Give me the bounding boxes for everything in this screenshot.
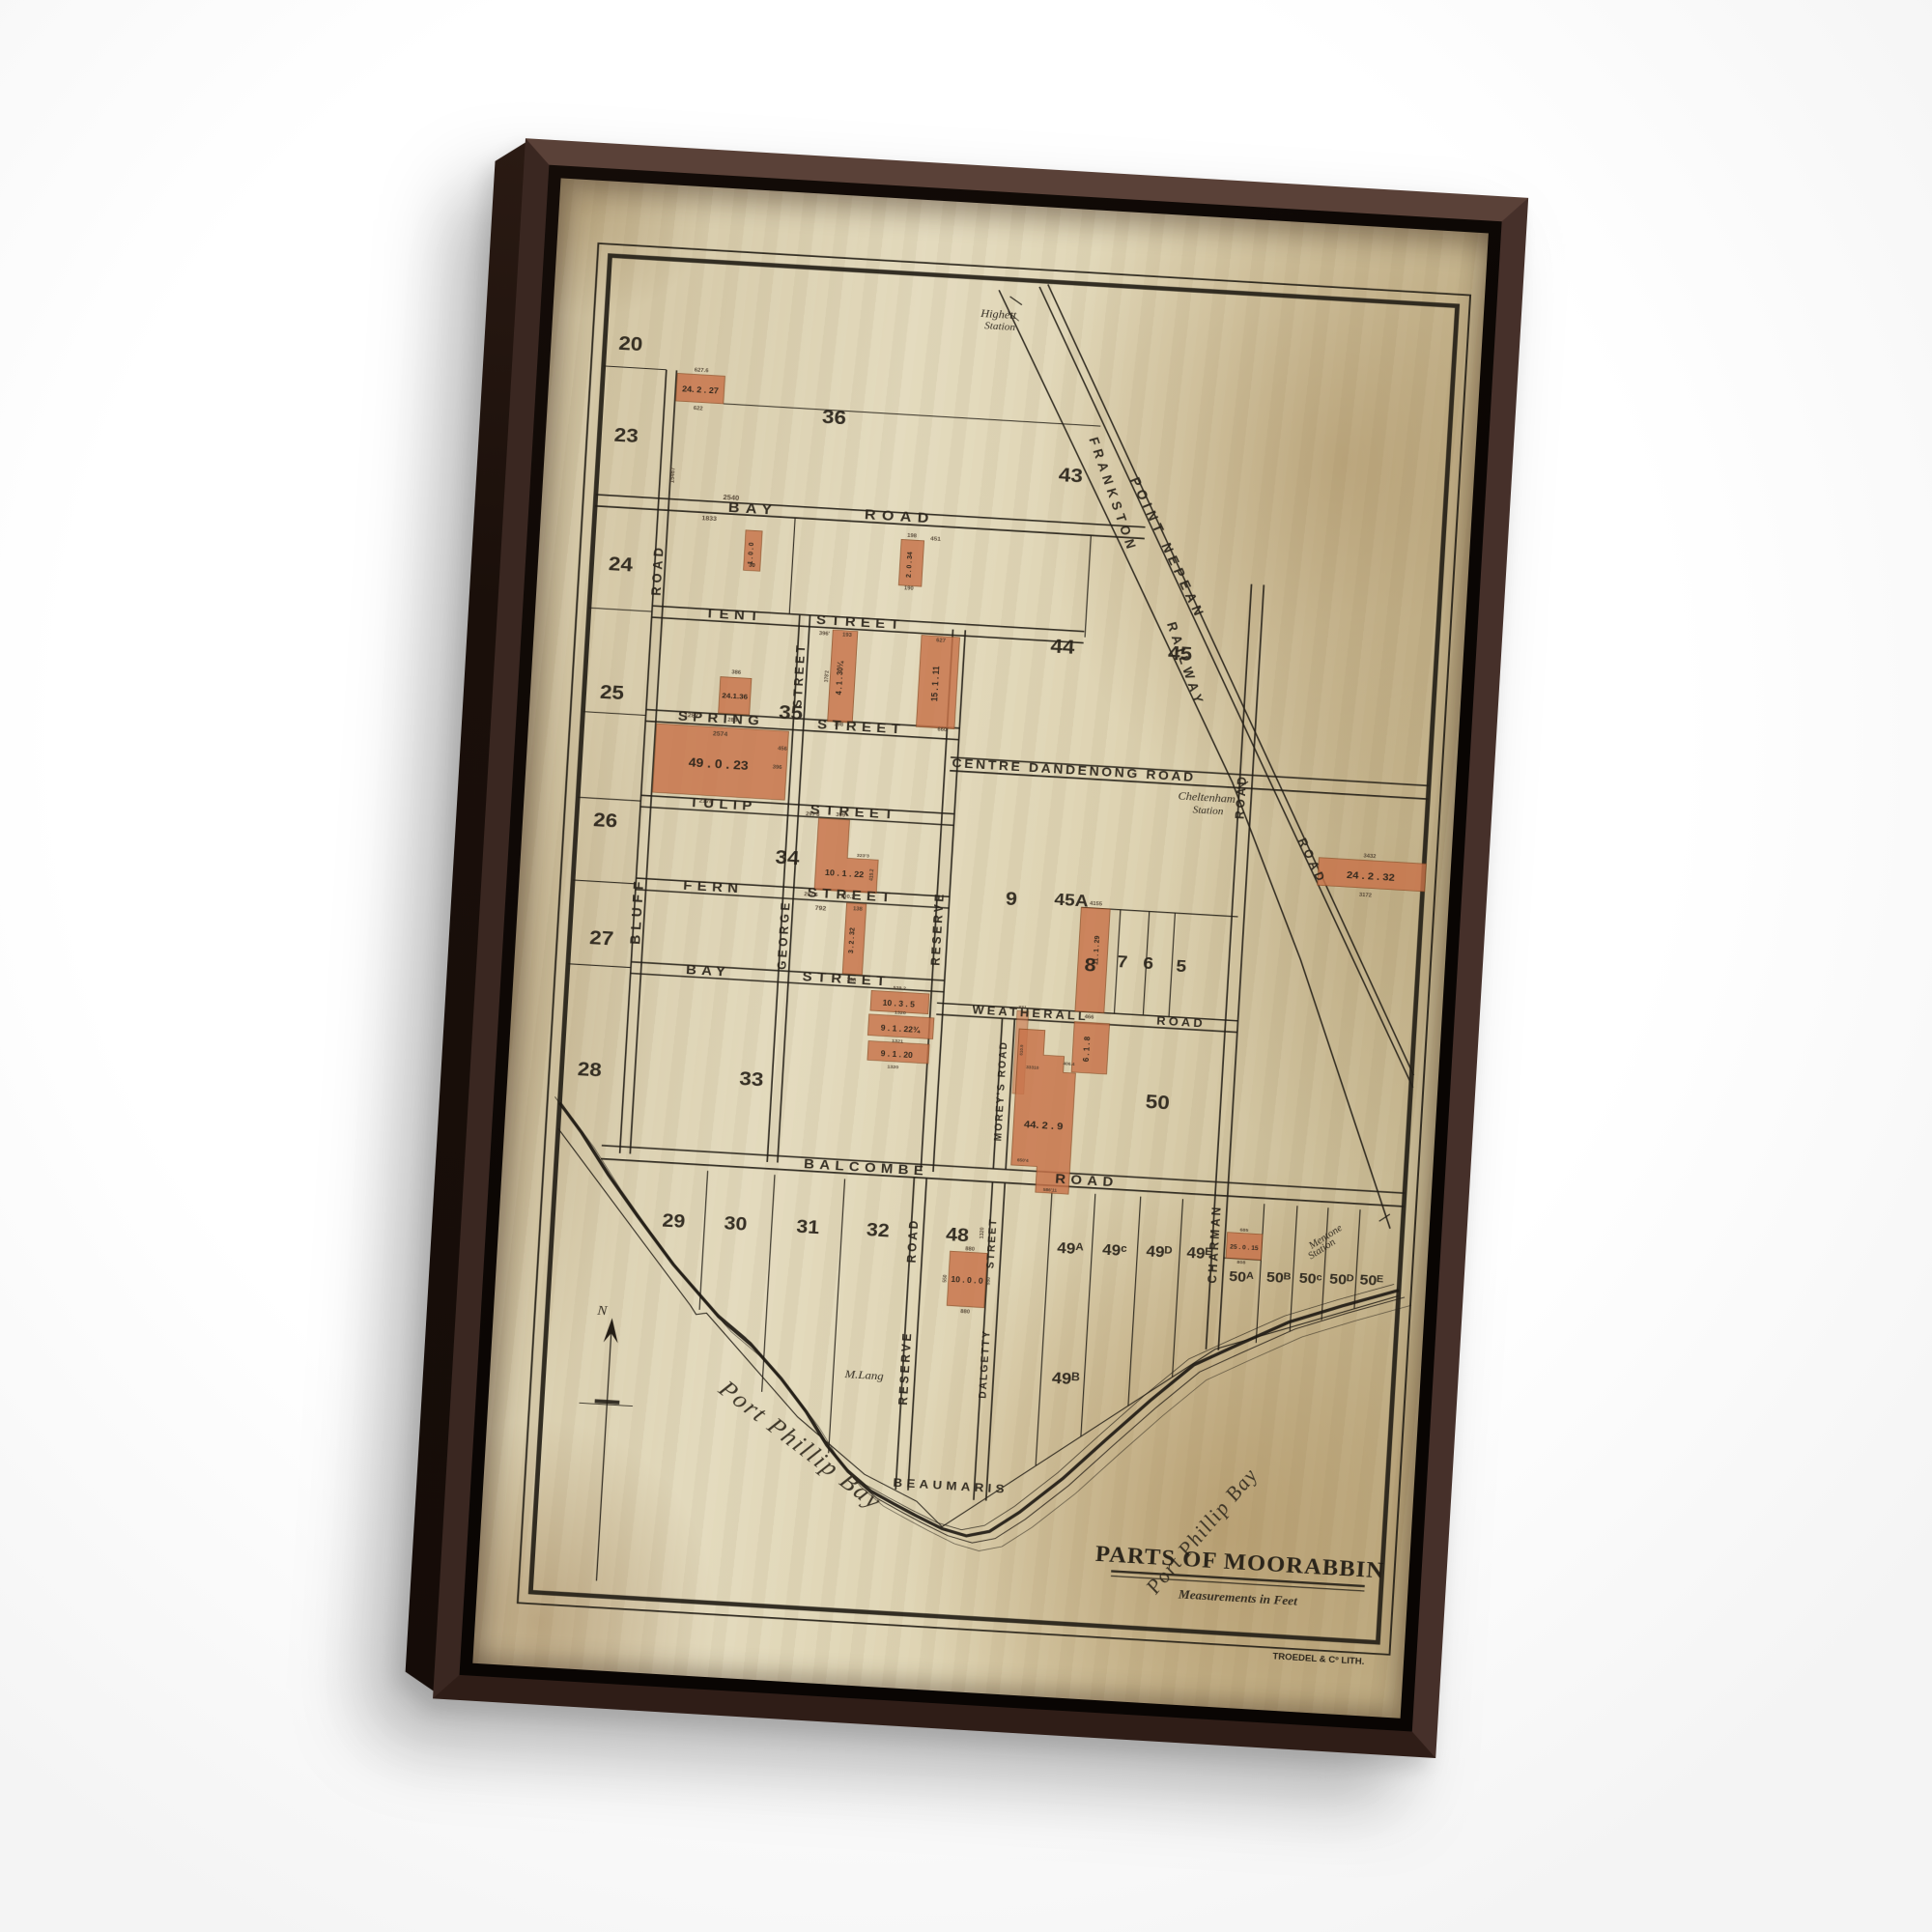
measurement-label: 622 xyxy=(694,406,703,412)
section-number: 50ᴱ xyxy=(1359,1272,1384,1290)
measurement-label: 1320 xyxy=(979,1227,985,1238)
map-svg: BAYROADTENTSTREETSPRINGSTREETTULIPSTREET… xyxy=(472,178,1489,1718)
frame-front: BAYROADTENTSTREETSPRINGSTREETTULIPSTREET… xyxy=(433,138,1528,1758)
measurement-label: 550 xyxy=(942,1274,949,1283)
measurement-label: 1287 xyxy=(684,712,699,720)
measurement-label: 297'8 xyxy=(806,811,820,818)
section-number: 7 xyxy=(1117,952,1128,972)
section-number: 6 xyxy=(1143,952,1154,973)
measurement-label: 627.6 xyxy=(695,368,709,375)
measurement-label: 550 xyxy=(985,1277,992,1286)
map-line xyxy=(541,1110,1412,1568)
map-line xyxy=(589,608,652,611)
street-label: ROAD xyxy=(904,1217,921,1263)
measurement-label: 378'2 xyxy=(824,670,831,683)
map-line xyxy=(604,366,667,370)
station-label: Station xyxy=(1192,805,1223,817)
measurement-label: 610.9 xyxy=(1019,1044,1025,1056)
street-label: CHARMAN xyxy=(1206,1204,1224,1284)
measurement-label: 396 xyxy=(772,765,781,771)
section-number: 29 xyxy=(662,1209,686,1232)
map-line xyxy=(1085,535,1091,637)
street-label: CENTRE DANDENONG ROAD xyxy=(952,755,1196,783)
map-line xyxy=(1003,284,1460,1075)
map-line xyxy=(596,1325,611,1580)
section-number: 50ᴰ xyxy=(1329,1271,1354,1289)
measurement-label: 1320 xyxy=(887,1065,898,1070)
section-number: 30 xyxy=(724,1212,748,1235)
section-number: 25 xyxy=(599,680,624,704)
measurement-label: 297'6 xyxy=(804,892,818,898)
map-line xyxy=(1128,1197,1141,1406)
map-title: TROEDEL & Cº LITH. xyxy=(1272,1652,1365,1666)
measurement-label: 198 xyxy=(846,978,856,983)
water-label: Port Phillip Bay xyxy=(713,1375,889,1516)
map-line xyxy=(568,964,631,968)
map-line xyxy=(724,404,1101,426)
section-number: 49ᴱ xyxy=(1186,1244,1212,1263)
measurement-label: 419.2 xyxy=(868,868,875,881)
highlighted-parcel xyxy=(814,818,880,894)
measurement-label: 399 xyxy=(836,812,845,818)
street-label: DALGETTY xyxy=(977,1329,993,1399)
section-number: 26 xyxy=(593,808,618,832)
parcel-label: 30 xyxy=(749,563,755,569)
parcel-label: 2 . 0 . 34 xyxy=(903,552,914,578)
measurement-label: 198 xyxy=(907,533,917,539)
station-label: N xyxy=(596,1303,609,1319)
map-line xyxy=(829,1179,845,1453)
map-line xyxy=(1379,1213,1390,1222)
parcel-label: 44. 2 . 9 xyxy=(1024,1120,1064,1133)
street-label: BAY xyxy=(686,962,731,980)
section-number: 50ᴮ xyxy=(1266,1269,1292,1287)
map-line xyxy=(601,1159,1404,1207)
measurement-label: 586'11 xyxy=(1043,1187,1058,1193)
section-number: 50ᶜ xyxy=(1298,1270,1322,1288)
measurement-label: 138 xyxy=(853,906,863,912)
section-number: 45A xyxy=(1054,889,1089,910)
measurement-label: 3432 xyxy=(1363,854,1376,861)
measurement-label: 792 xyxy=(814,905,826,912)
map-line xyxy=(578,797,640,801)
section-number: 34 xyxy=(775,845,800,869)
section-number: 44 xyxy=(1050,634,1075,658)
section-number: 49ᶜ xyxy=(1102,1241,1127,1260)
measurement-label: 190 xyxy=(904,585,914,591)
station-label: Station xyxy=(984,320,1015,332)
parcel-label: 15 . 1 . 11 xyxy=(929,666,942,702)
measurement-label: 2574 xyxy=(713,731,728,739)
measurement-label: 539.2 xyxy=(893,985,906,992)
framed-canvas: BAYROADTENTSTREETSPRINGSTREETTULIPSTREET… xyxy=(433,138,1528,1758)
station-label: M.Lang xyxy=(843,1368,884,1383)
street-label: STREET xyxy=(816,613,905,634)
measurement-label: 288 xyxy=(727,718,737,724)
map-line xyxy=(1169,913,1175,1016)
section-number: 28 xyxy=(577,1057,602,1081)
section-number: 49ᴮ xyxy=(1051,1369,1080,1389)
map-line xyxy=(595,1401,620,1403)
measurement-label: 33310 xyxy=(1026,1065,1039,1070)
street-label: ROAD xyxy=(864,507,935,527)
street-label: STREET xyxy=(817,717,906,737)
measurement-label: 3172 xyxy=(1359,893,1372,899)
section-number: 31 xyxy=(796,1216,820,1238)
section-number: 32 xyxy=(866,1219,890,1241)
map-title: Measurements in Feet xyxy=(1177,1588,1297,1608)
wall: BAYROADTENTSTREETSPRINGSTREETTULIPSTREET… xyxy=(0,0,1932,1932)
measurement-label: 466 xyxy=(1084,1014,1094,1020)
measurement-label: 1833 xyxy=(701,515,717,523)
street-label: RESERVE xyxy=(928,891,947,966)
street-label: BAY xyxy=(728,500,779,519)
street-label: ROAD xyxy=(648,544,667,596)
station-label: Cheltenham xyxy=(1178,789,1236,806)
section-number: 9 xyxy=(1005,888,1017,910)
measurement-label: 685 xyxy=(1239,1228,1248,1234)
map-line xyxy=(1036,1191,1052,1465)
measurement-label: 193 xyxy=(842,633,852,639)
parcel-label: 6 . 1 . 8 xyxy=(1082,1036,1093,1062)
measurement-label: 2178 xyxy=(698,798,713,806)
measurement-label: 1321 xyxy=(892,1038,903,1044)
measurement-label: 650'4 xyxy=(1017,1158,1030,1164)
map-line xyxy=(1009,297,1022,305)
section-number: 48 xyxy=(946,1224,970,1246)
canvas-paper: BAYROADTENTSTREETSPRINGSTREETTULIPSTREET… xyxy=(472,178,1489,1718)
section-number: 23 xyxy=(613,423,639,447)
section-number: 27 xyxy=(589,925,614,950)
measurement-label: 451 xyxy=(930,535,942,542)
section-number: 24 xyxy=(608,552,633,576)
map-line xyxy=(573,880,636,884)
section-number: 36 xyxy=(821,405,846,429)
measurement-label: 456 xyxy=(778,746,787,752)
measurement-label: 323'3 xyxy=(857,853,870,860)
section-number: 20 xyxy=(618,331,643,355)
street-label: BLUFF xyxy=(628,876,648,945)
map-line xyxy=(993,287,1459,1088)
parcel-label: 3 . 2 . 32 xyxy=(846,927,857,953)
measurement-label: 627 xyxy=(936,639,946,644)
water-label: BEAUMARIS xyxy=(893,1475,1009,1495)
measurement-label: 660' xyxy=(937,727,949,733)
map-line xyxy=(1256,1204,1264,1343)
section-number: 50 xyxy=(1145,1090,1170,1114)
measurement-label: 386 xyxy=(731,669,741,675)
parcel-label: 1 . 0 . 0 xyxy=(745,542,755,565)
street-label: RESERVE xyxy=(895,1330,914,1406)
measurement-label: 198 xyxy=(834,722,843,727)
measurement-label: 1320 xyxy=(895,1010,906,1016)
street-label: TENT xyxy=(705,607,764,625)
frame-gap: BAYROADTENTSTREETSPRINGSTREETTULIPSTREET… xyxy=(460,165,1502,1732)
parcel-label: 11 . 1 . 29 xyxy=(1091,935,1101,965)
section-number: 5 xyxy=(1176,955,1187,976)
measurement-label: 700.2' xyxy=(840,895,857,901)
measurement-label: 15467 xyxy=(669,467,677,483)
section-number: 45 xyxy=(1168,640,1193,665)
measurement-label: 880 xyxy=(960,1309,970,1315)
section-number: 33 xyxy=(739,1066,764,1091)
measurement-label: 396' xyxy=(819,631,831,637)
measurement-label: 331 xyxy=(1018,1005,1027,1010)
map-border xyxy=(530,256,1457,1643)
section-number: 50ᴬ xyxy=(1229,1269,1255,1287)
section-number: 49ᴰ xyxy=(1146,1243,1173,1262)
measurement-label: 4155 xyxy=(1090,901,1102,908)
parcel-label: 24.1.36 xyxy=(722,692,748,701)
measurement-label: 2540 xyxy=(723,493,739,502)
street-label: STREET xyxy=(984,1217,1000,1268)
street-label: FERN xyxy=(683,878,744,896)
section-number: 49ᴬ xyxy=(1057,1239,1084,1258)
measurement-label: 808 xyxy=(1236,1260,1245,1265)
measurement-label: 406.4 xyxy=(1063,1062,1075,1067)
section-number: 35 xyxy=(778,700,803,724)
measurement-label: 880 xyxy=(965,1246,975,1252)
map-line xyxy=(699,1171,708,1310)
map-line xyxy=(582,712,645,716)
map-line xyxy=(789,518,795,614)
street-label: BALCOMBE xyxy=(804,1157,929,1179)
map-line xyxy=(1173,1199,1183,1377)
map-line xyxy=(1081,1194,1095,1436)
map-line xyxy=(602,1146,1405,1193)
section-number: 43 xyxy=(1058,463,1083,487)
